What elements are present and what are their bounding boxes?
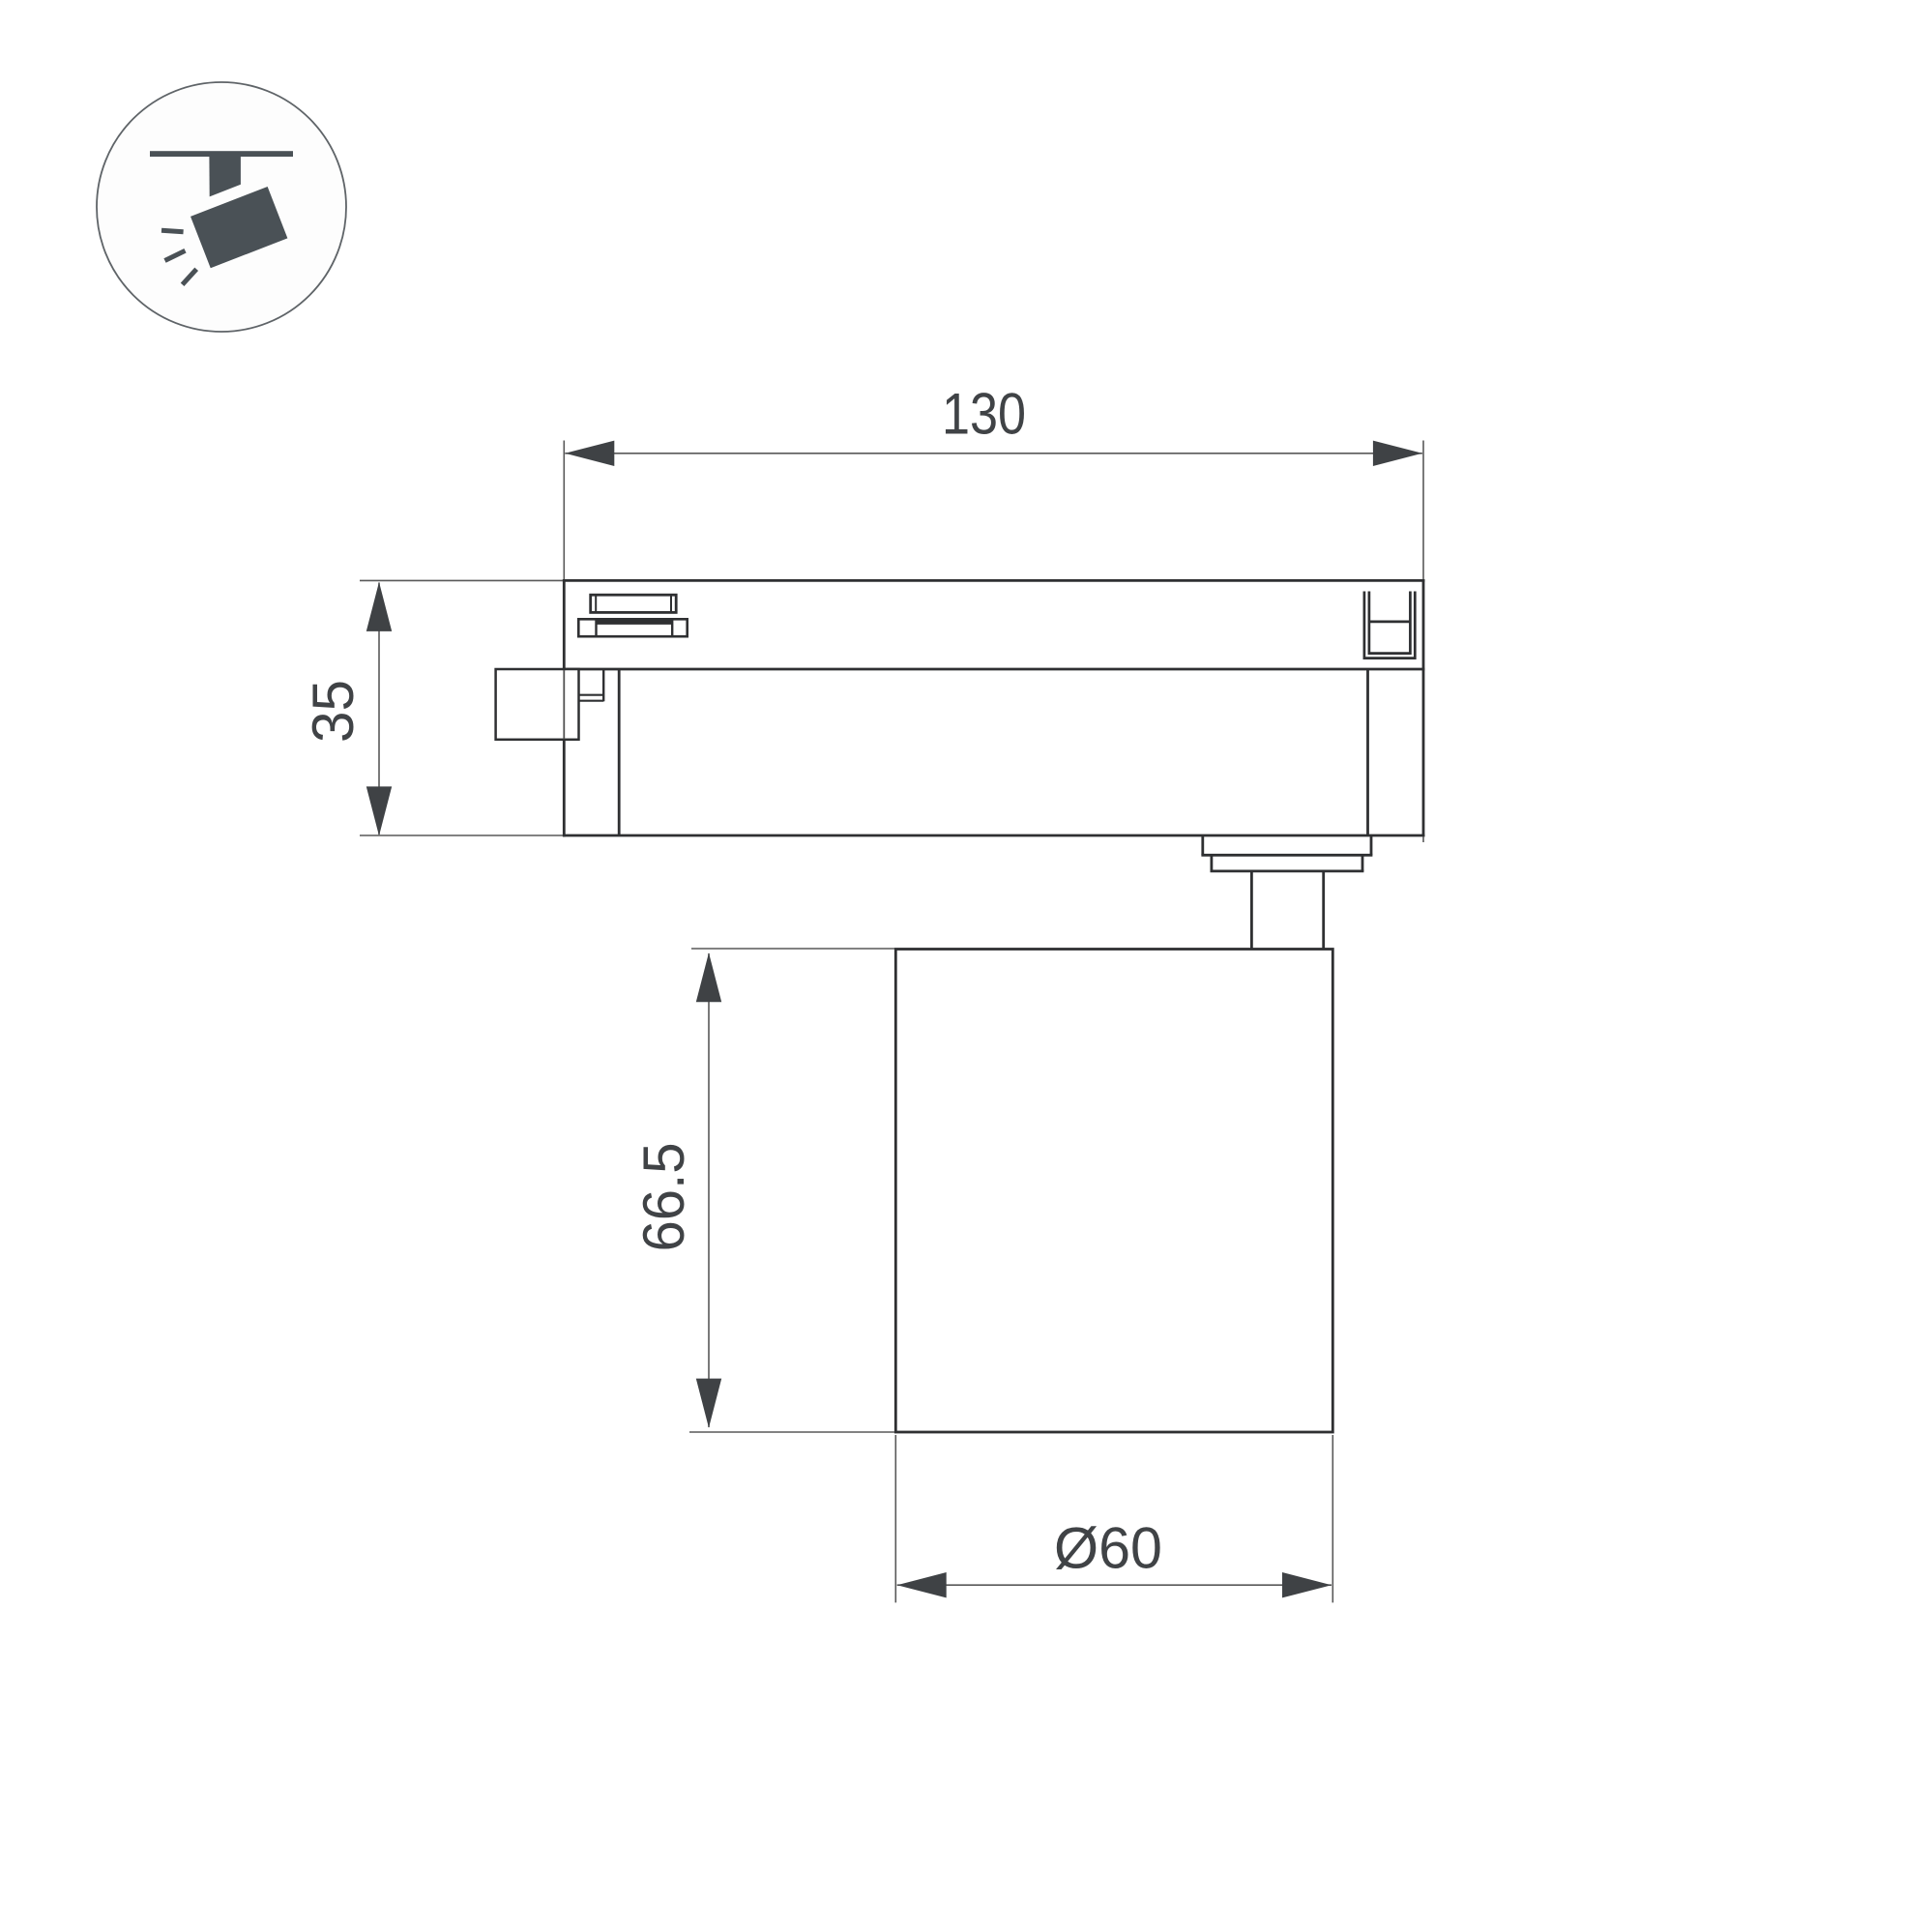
svg-text:130: 130 [942, 381, 1026, 446]
svg-text:66.5: 66.5 [631, 1143, 696, 1252]
svg-text:35: 35 [301, 680, 366, 743]
svg-text:Ø60: Ø60 [1054, 1515, 1162, 1580]
